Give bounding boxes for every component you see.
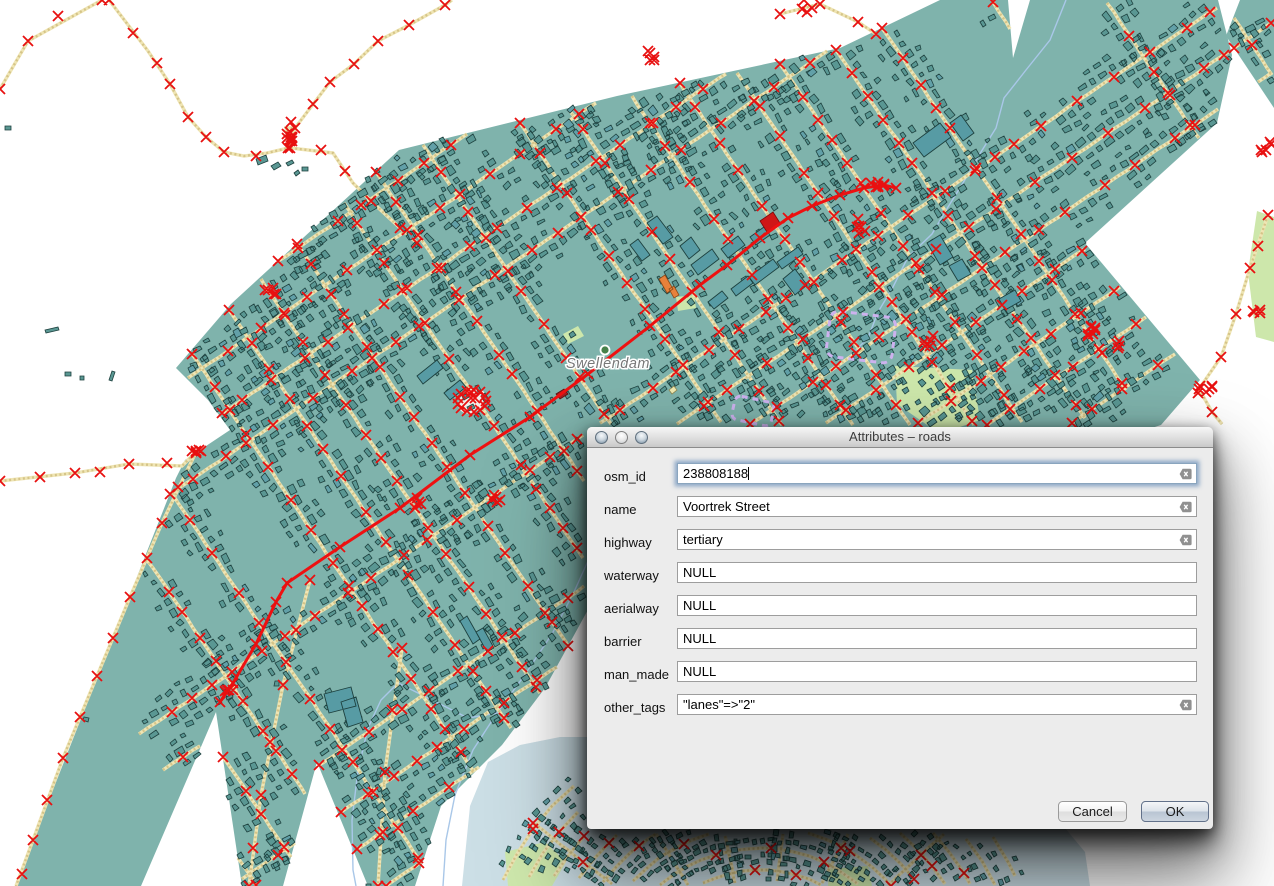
svg-text:Swellendam: Swellendam <box>566 356 650 372</box>
